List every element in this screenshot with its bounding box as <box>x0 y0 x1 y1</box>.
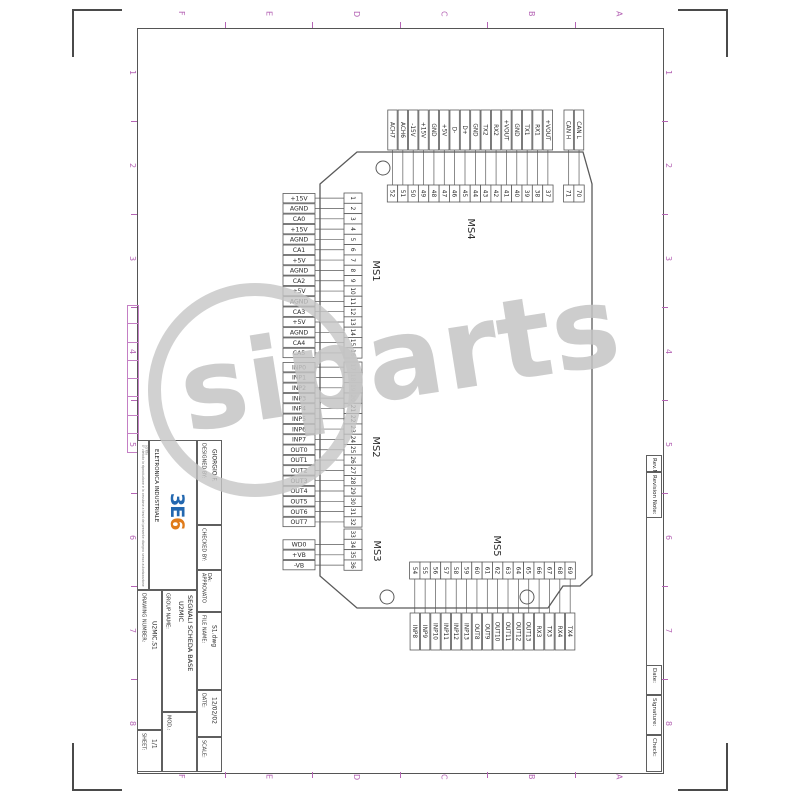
pin-label: RX3 <box>535 626 541 638</box>
pin-number: 62 <box>494 567 500 575</box>
pin-label: GND <box>471 123 477 137</box>
pin-number: 68 <box>556 567 562 575</box>
pin-label: CA2 <box>293 278 306 285</box>
pin-number: 52 <box>388 190 394 198</box>
pin-number: 58 <box>452 567 458 575</box>
file-name-cell: FILE NAME: S1.dwg <box>197 612 222 690</box>
pin-number: 29 <box>349 487 355 495</box>
pin-label: INP9 <box>421 625 427 639</box>
pin-label: CA1 <box>293 247 306 254</box>
fine-print-cell: E' vietata la riproduzione e la cessione… <box>137 440 149 590</box>
revision-strip-label: Signature: <box>651 698 657 726</box>
revision-strip-cell: Signature: <box>646 695 662 735</box>
sheet-label: SHEET: <box>140 733 146 750</box>
pin-number: 45 <box>461 190 467 198</box>
pin-number: 34 <box>349 541 355 549</box>
pin-number: 71 <box>565 190 571 198</box>
pin-number: 50 <box>409 190 415 198</box>
sheet-value: 1/1 <box>150 739 157 749</box>
pin-number: 65 <box>525 567 531 575</box>
pin-number: 54 <box>411 567 417 575</box>
pin-number: 51 <box>399 190 405 198</box>
pin-number: 57 <box>442 567 448 575</box>
pin-label: OUT7 <box>290 519 307 526</box>
pin-number: 43 <box>482 190 488 198</box>
mod-cell: MOD.: <box>162 712 197 772</box>
pin-number: 3 <box>349 217 355 221</box>
pin-label: OUT5 <box>290 499 307 506</box>
approved-label: APPROVATO DA: <box>200 573 211 611</box>
pin-number: 28 <box>349 477 355 485</box>
pin-label: TX2 <box>482 123 488 136</box>
pin-number: 38 <box>534 190 540 198</box>
checked-by-label: CHECKED BY: <box>200 528 206 561</box>
drawing-number-cell: DRAWING NUMBER: U2MIC.S1 <box>137 590 162 730</box>
logo-blue-part: 3E <box>166 493 188 517</box>
pin-number: 47 <box>440 190 446 198</box>
revision-strip-label: Date: <box>651 668 657 683</box>
pin-label: CAN H <box>565 121 571 140</box>
pin-label: +VB <box>292 552 306 559</box>
pin-label: AGND <box>290 206 309 213</box>
fine-print-text: E' vietata la riproduzione e la cessione… <box>140 445 148 587</box>
checked-by-cell: CHECKED BY: <box>197 525 222 570</box>
pin-label: OUT9 <box>483 623 489 639</box>
pin-number: 60 <box>473 567 479 575</box>
mod-label: MOD.: <box>165 715 171 730</box>
mounting-hole <box>376 161 390 175</box>
pin-number: 31 <box>349 508 355 516</box>
pin-number: 56 <box>432 567 438 575</box>
file-name-label: FILE NAME: <box>200 615 206 643</box>
pin-label: -VB <box>294 562 304 569</box>
pin-label: RX2 <box>492 124 498 136</box>
date-value: 12/02/02 <box>210 697 217 724</box>
pin-label: ACH6 <box>399 122 405 138</box>
pin-number: 36 <box>349 561 355 569</box>
pin-label: AGND <box>290 237 309 244</box>
pin-number: 8 <box>349 269 355 273</box>
pin-label: WD0 <box>292 542 307 549</box>
pin-label: +VOUT <box>544 119 550 141</box>
pin-label: D- <box>451 127 457 134</box>
pin-label: OUT8 <box>473 623 479 639</box>
pin-number: 40 <box>513 190 519 198</box>
revision-strip-cell: Rev.No <box>646 455 662 472</box>
pin-number: 35 <box>349 551 355 559</box>
revision-strip-cell: Revision Note: <box>646 472 662 518</box>
pin-label: +5V <box>292 257 306 264</box>
pin-number: 61 <box>483 567 489 575</box>
pin-label: INP12 <box>452 623 458 640</box>
pin-label: ACH7 <box>388 122 394 138</box>
pin-label: TX1 <box>523 123 529 136</box>
pin-label: OUT12 <box>514 622 520 642</box>
pin-number: 33 <box>349 530 355 538</box>
connector-name: MS4 <box>465 218 476 239</box>
mounting-hole <box>520 590 534 604</box>
pin-label: INP10 <box>432 623 438 640</box>
pin-number: 32 <box>349 518 355 526</box>
pin-label: +15V <box>420 122 426 138</box>
pin-label: +5V <box>440 124 446 137</box>
company-logo: 3E6 <box>167 493 186 529</box>
connector-name: MS3 <box>371 540 382 561</box>
pin-number: 69 <box>566 567 572 575</box>
pin-label: GND <box>513 123 519 137</box>
pin-number: 63 <box>504 567 510 575</box>
pin-number: 42 <box>492 190 498 198</box>
pin-number: 48 <box>430 190 436 198</box>
sheet-cell: SHEET: 1/1 <box>137 730 162 772</box>
pin-number: 66 <box>535 567 541 575</box>
pin-number: 27 <box>349 467 355 475</box>
pin-label: CAN L <box>575 121 581 139</box>
group-name-label: GROUP NAME: <box>164 593 170 629</box>
pin-number: 44 <box>471 190 477 198</box>
drawing-sheet: FFEEDDCCBBAA1122334455667788 12345678910… <box>0 0 800 800</box>
pin-number: 70 <box>575 190 581 198</box>
pin-label: TX3 <box>545 625 551 638</box>
pin-number: 64 <box>514 567 520 575</box>
pin-number: 46 <box>451 190 457 198</box>
pin-number: 7 <box>349 258 355 262</box>
pin-label: RX1 <box>534 124 540 136</box>
file-name-value: S1.dwg <box>210 625 217 647</box>
pin-label: CA0 <box>293 216 306 223</box>
connector-name: MS5 <box>491 535 502 556</box>
pin-label: GND <box>430 123 436 137</box>
pin-label: OUT13 <box>525 622 531 642</box>
pin-number: 5 <box>349 238 355 242</box>
date-label: DATE: <box>200 693 206 708</box>
drawing-number-label: DRAWING NUMBER: <box>140 593 146 642</box>
pin-number: 1 <box>349 196 355 200</box>
pin-label: +15V <box>290 195 308 202</box>
pin-label: +VOUT <box>502 119 508 141</box>
scale-cell: SCALE: <box>197 737 222 772</box>
pin-number: 2 <box>349 207 355 211</box>
pin-label: OUT6 <box>290 509 307 516</box>
approved-cell: APPROVATO DA: <box>197 570 222 612</box>
pin-label: +15V <box>290 226 308 233</box>
pin-number: 37 <box>544 190 550 198</box>
pin-label: -15V <box>409 123 415 136</box>
pin-number: 26 <box>349 456 355 464</box>
pin-label: OUT11 <box>504 622 510 642</box>
logo-orange-part: 6 <box>166 517 188 529</box>
pin-number: 67 <box>545 567 551 575</box>
revision-strip-cell: Date: <box>646 665 662 695</box>
drawing-number-value: U2MIC.S1 <box>150 621 157 650</box>
pin-label: OUT10 <box>494 622 500 642</box>
date-cell: DATE: 12/02/02 <box>197 690 222 737</box>
mounting-hole <box>380 590 394 604</box>
pin-number: 6 <box>349 248 355 252</box>
pin-label: INP13 <box>463 623 469 640</box>
pin-label: AGND <box>290 268 309 275</box>
scale-label: SCALE: <box>200 740 206 758</box>
pin-label: D+ <box>461 125 467 134</box>
pin-label: INP11 <box>442 623 448 640</box>
pin-number: 59 <box>463 567 469 575</box>
pin-number: 39 <box>523 190 529 198</box>
group-name-line2: SEGNALI SCHEDA BASE <box>186 595 193 671</box>
revision-strip-cell: Check: <box>646 735 662 772</box>
pin-label: TX4 <box>566 625 572 638</box>
pin-number: 30 <box>349 498 355 506</box>
pin-number: 4 <box>349 227 355 231</box>
company-name: ELETRONICA INDUSTRIALE <box>153 449 159 522</box>
group-name-line1: U2MIC <box>177 601 184 622</box>
pin-number: 41 <box>502 190 508 198</box>
pin-label: RX4 <box>556 626 562 638</box>
pin-number: 49 <box>420 190 426 198</box>
revision-strip-label: Revision Note: <box>651 475 657 515</box>
pin-number: 55 <box>421 567 427 575</box>
pin-label: INP8 <box>411 625 417 639</box>
revision-strip-label: Check: <box>651 738 657 757</box>
group-name-cell: GROUP NAME: U2MIC SEGNALI SCHEDA BASE <box>162 590 197 712</box>
